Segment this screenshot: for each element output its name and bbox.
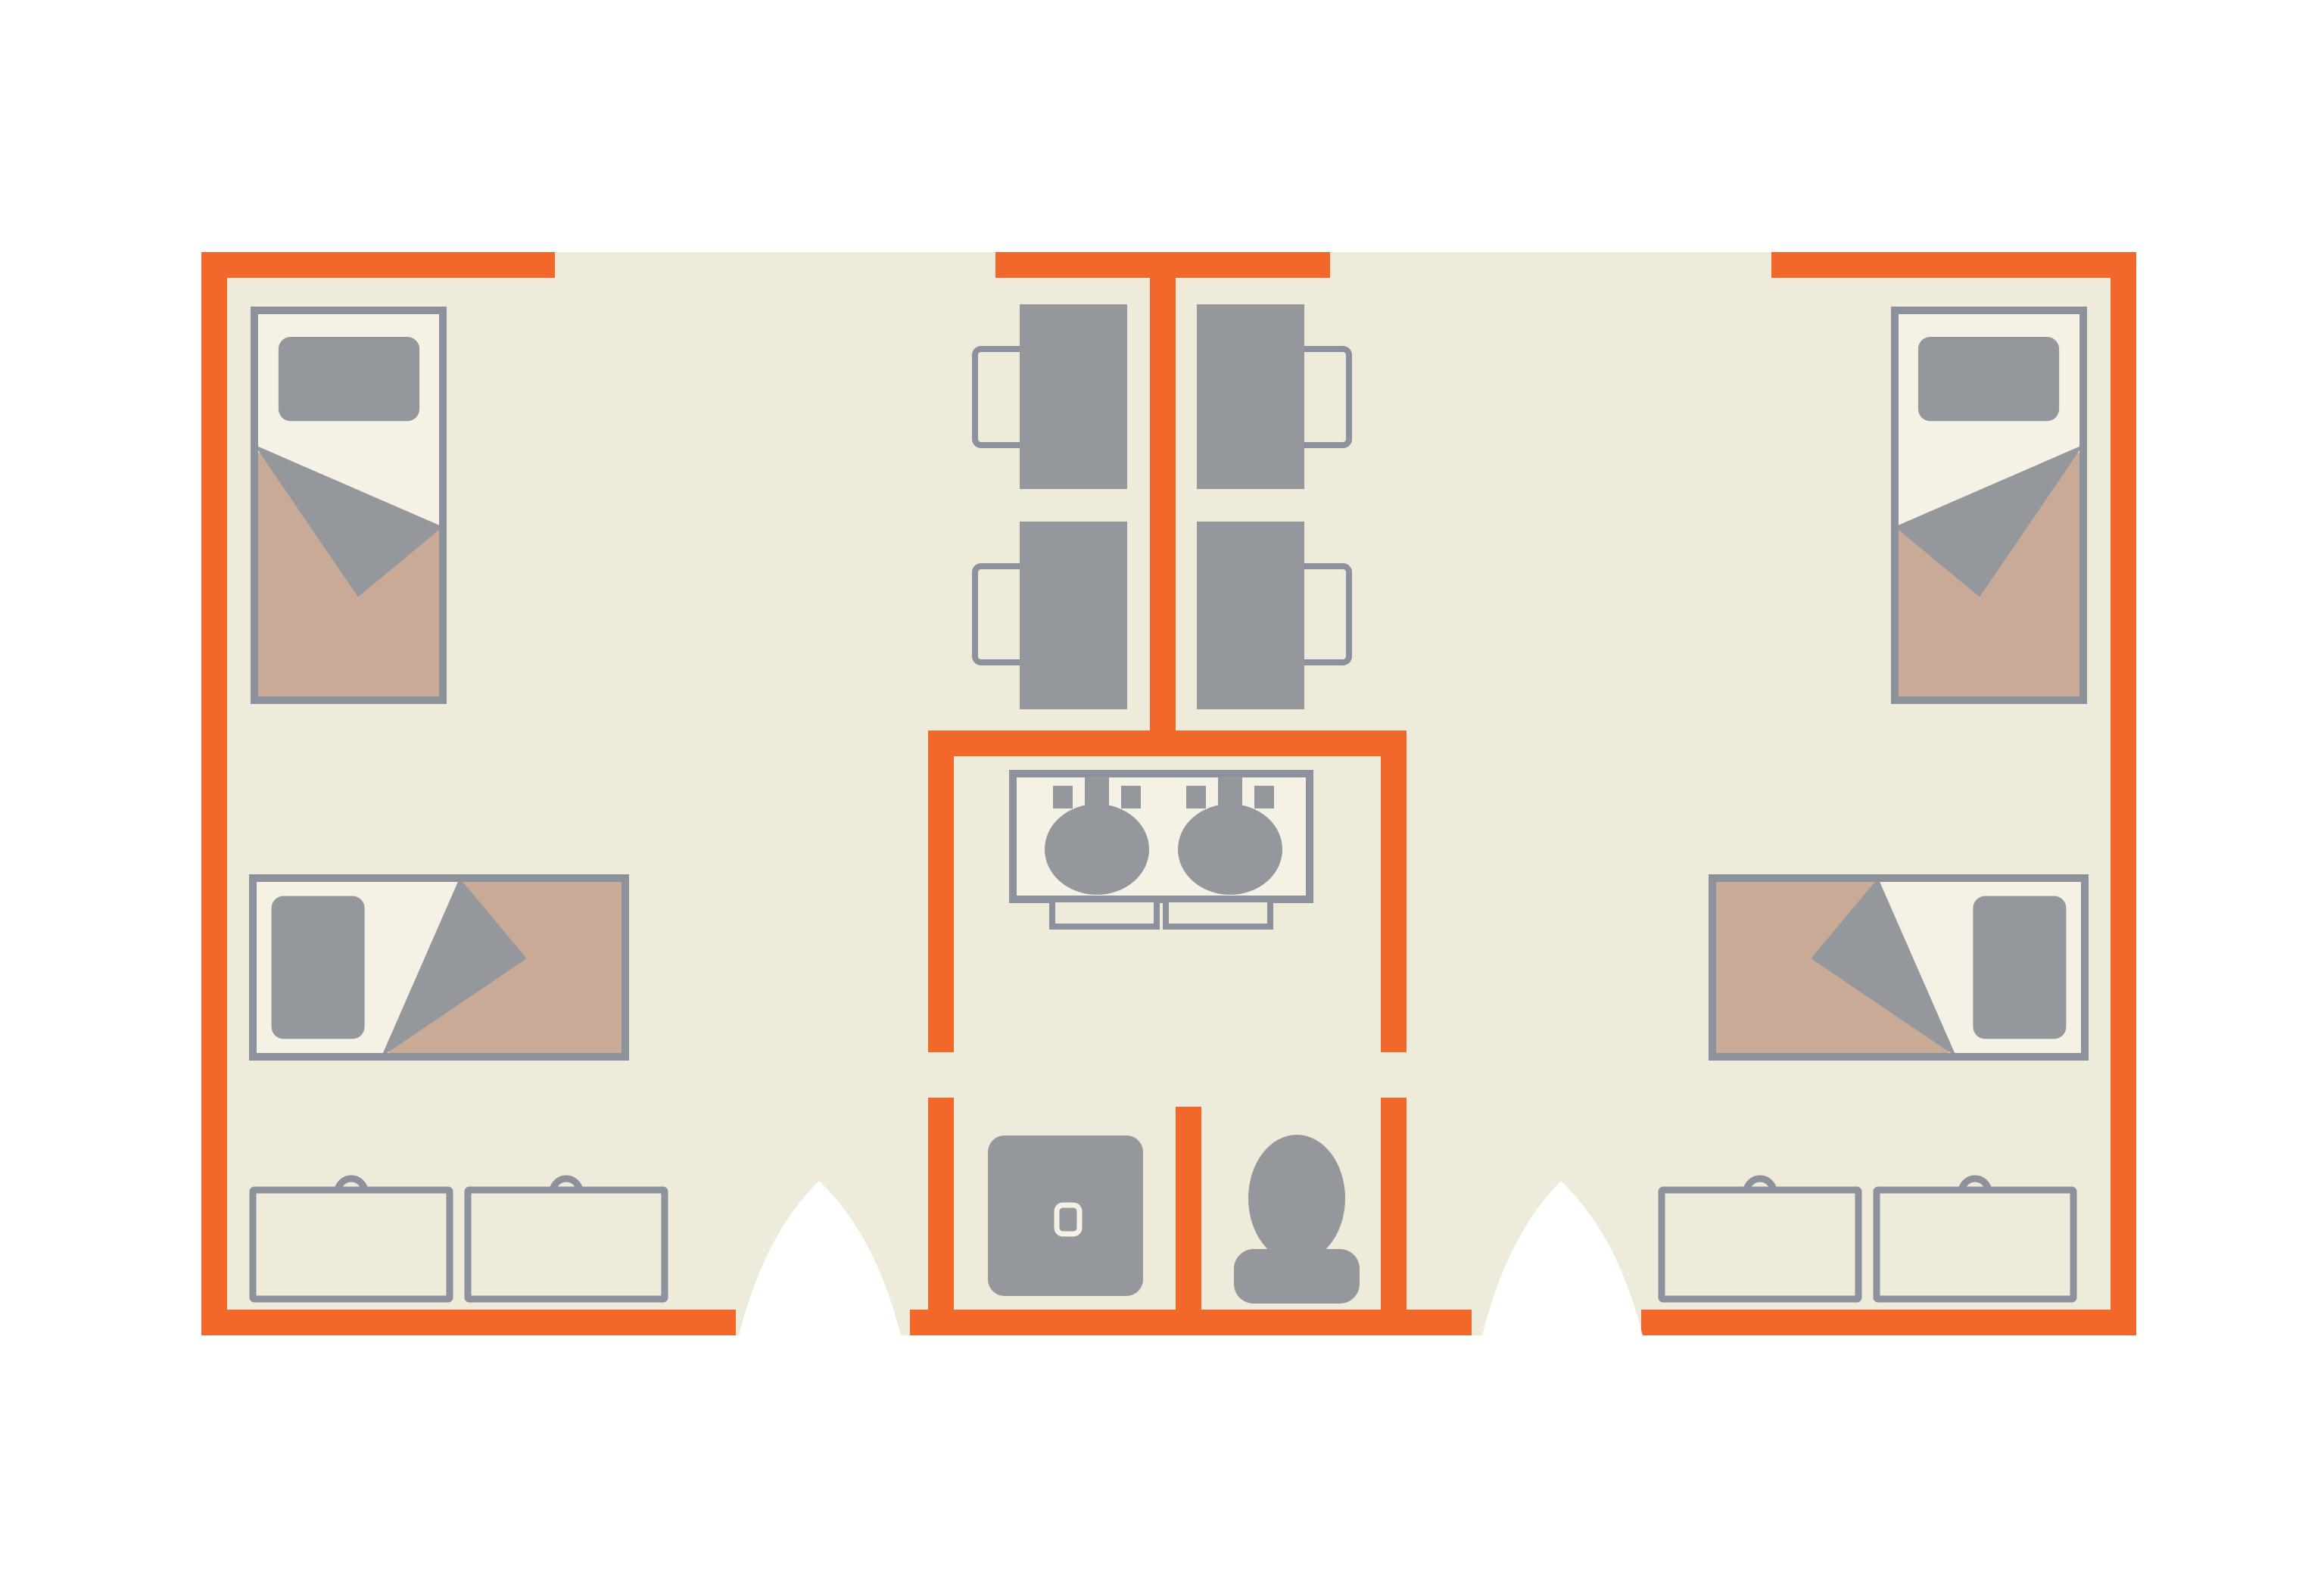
dresser-right-room-1 [1662,1190,1858,1299]
floorplan-svg [0,0,2324,1595]
toilet-base [1234,1249,1360,1304]
wall-shower-stall-left [928,1098,954,1335]
bed-pillow [272,896,365,1039]
desk-bottom-right [1197,522,1304,709]
faucet-handle-icon [1186,786,1206,808]
wall-top-left-room [201,252,555,278]
desk-top-left [1020,304,1127,489]
dresser-right-room-2 [1877,1190,2073,1299]
wall-desk-divider [1150,252,1176,756]
shower [988,1136,1143,1296]
wall-toilet-stall-right [1381,1098,1407,1335]
bed-pillow [1973,896,2066,1039]
desk-top-right [1197,304,1304,489]
dorm-suite-floorplan [0,0,2324,1595]
wall-bottom-left-room [201,1310,736,1335]
faucet-handle-icon [1254,786,1274,808]
wall-left-exterior [201,252,227,1335]
faucet-handle-icon [1121,786,1141,808]
sink-cabinet-left [1052,899,1157,927]
faucet-handle-icon [1053,786,1073,808]
sink-basin [1045,804,1149,895]
toilet-bowl [1248,1135,1345,1262]
dresser-left-room-2 [468,1190,665,1299]
dresser-left-room-1 [253,1190,450,1299]
wall-top-right-room [1771,252,2136,278]
wall-right-exterior [2111,252,2136,1335]
bed-pillow [279,337,419,421]
wall-bottom-right-room [1641,1310,2136,1335]
wall-bath-left-upper [928,731,954,1052]
wall-bath-top [928,731,1407,756]
sink-cabinet-right [1166,899,1270,927]
desk-bottom-left [1020,522,1127,709]
sink-basin [1178,804,1282,895]
wall-stall-center [1176,1107,1201,1335]
wall-bath-right-upper [1381,731,1407,1052]
bed-pillow [1918,337,2059,421]
